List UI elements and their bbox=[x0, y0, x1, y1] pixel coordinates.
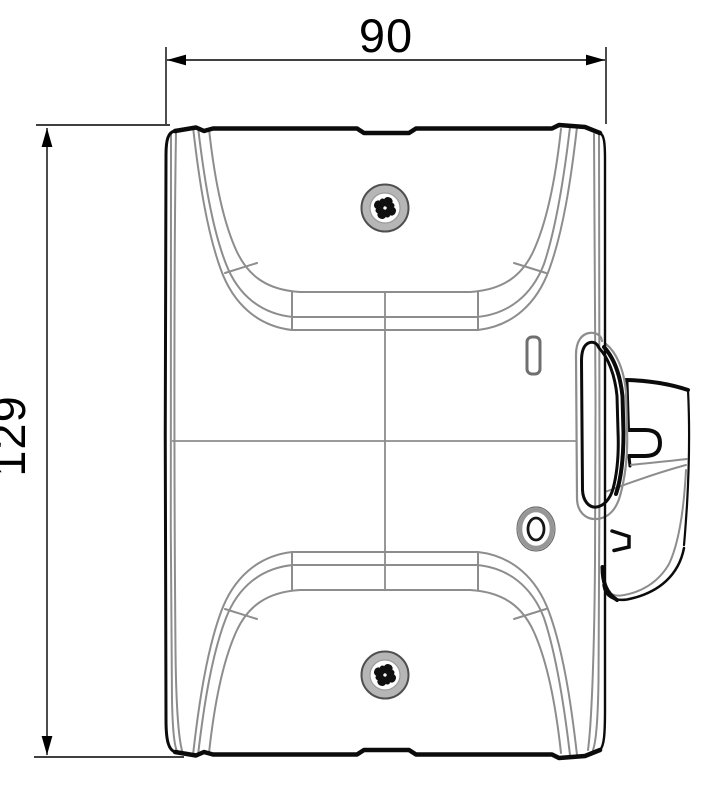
bottom-screw-icon bbox=[362, 652, 409, 699]
height-dimension-label: 129 bbox=[0, 395, 35, 476]
vertical-slot bbox=[527, 337, 540, 374]
top-screw-icon bbox=[362, 185, 409, 232]
grommet-hole bbox=[528, 518, 544, 540]
dimension-drawing: 90 129 bbox=[0, 0, 704, 800]
technical-drawing-canvas: 90 129 bbox=[0, 0, 704, 800]
oval-grommet bbox=[517, 507, 555, 551]
clip-hook-stem bbox=[629, 456, 630, 466]
width-dimension-label: 90 bbox=[359, 9, 413, 62]
